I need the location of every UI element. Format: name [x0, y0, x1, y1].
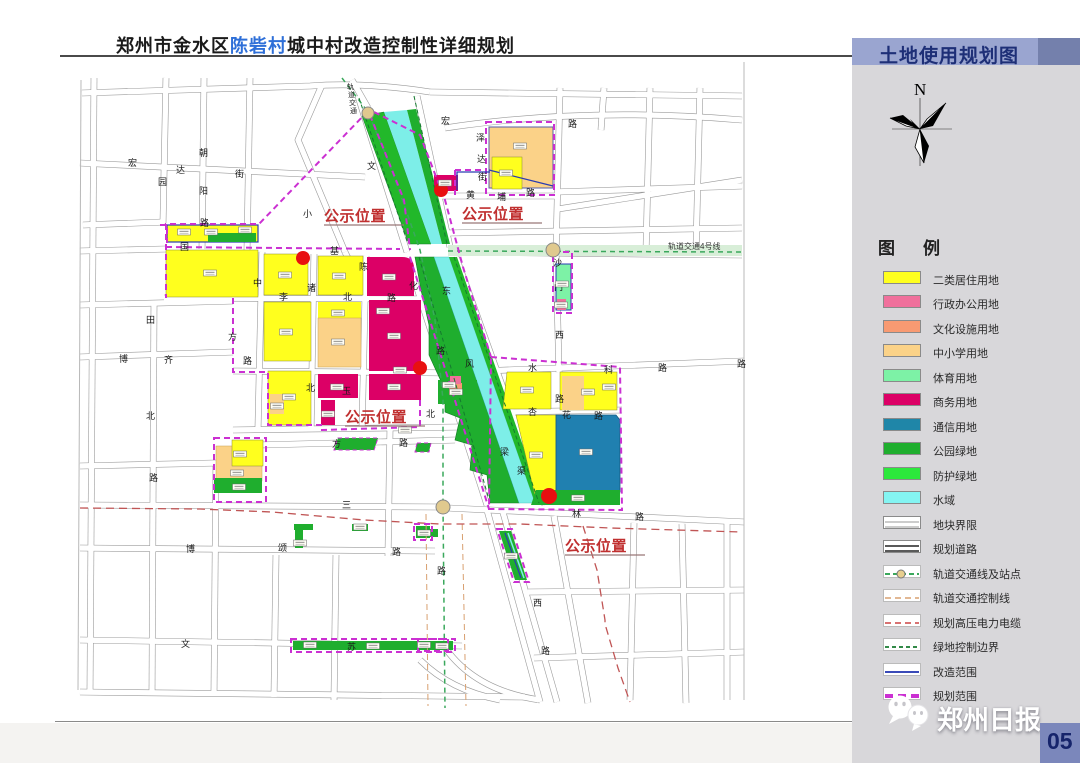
svg-text:路: 路: [526, 187, 535, 198]
svg-text:科: 科: [604, 364, 613, 375]
svg-text:达: 达: [477, 153, 486, 164]
svg-text:苏: 苏: [347, 641, 356, 652]
svg-text:风: 风: [465, 359, 474, 369]
svg-text:路: 路: [436, 345, 445, 356]
svg-text:林: 林: [572, 508, 581, 519]
svg-text:埔: 埔: [497, 191, 506, 202]
svg-text:李: 李: [279, 291, 288, 302]
svg-text:路: 路: [243, 355, 252, 366]
svg-text:街: 街: [478, 171, 487, 182]
svg-text:公示位置: 公示位置: [345, 408, 407, 426]
svg-text:园: 园: [158, 177, 167, 187]
svg-text:路: 路: [568, 118, 577, 129]
svg-text:北: 北: [426, 409, 435, 419]
svg-text:博: 博: [119, 353, 128, 364]
svg-text:中: 中: [253, 277, 262, 288]
svg-text:花: 花: [562, 409, 571, 420]
svg-text:路: 路: [149, 472, 158, 483]
svg-text:诸: 诸: [307, 283, 316, 293]
svg-text:轨: 轨: [347, 82, 354, 91]
svg-text:西: 西: [533, 598, 542, 608]
svg-text:宏: 宏: [441, 115, 450, 126]
svg-text:路: 路: [555, 393, 564, 404]
svg-text:梁: 梁: [500, 446, 509, 457]
svg-text:公示位置: 公示位置: [565, 537, 627, 555]
svg-text:北: 北: [146, 411, 155, 421]
svg-text:交: 交: [349, 98, 356, 107]
svg-text:西: 西: [555, 330, 564, 340]
svg-text:路: 路: [392, 546, 401, 557]
svg-text:颂: 颂: [278, 543, 287, 553]
svg-text:道: 道: [348, 90, 355, 99]
svg-text:公示位置: 公示位置: [324, 207, 386, 225]
svg-text:公示位置: 公示位置: [462, 205, 524, 223]
svg-text:路: 路: [737, 358, 746, 369]
svg-text:路: 路: [635, 511, 644, 522]
svg-text:N: N: [914, 80, 926, 99]
svg-text:路: 路: [594, 410, 603, 421]
svg-text:齐: 齐: [164, 354, 173, 365]
svg-text:路: 路: [541, 645, 550, 656]
svg-text:水: 水: [528, 362, 537, 373]
svg-text:黄: 黄: [466, 189, 475, 200]
svg-text:阳: 阳: [199, 186, 208, 196]
svg-text:基: 基: [330, 245, 339, 256]
svg-text:杏: 杏: [528, 406, 537, 417]
svg-text:宏: 宏: [128, 157, 137, 168]
svg-text:轨道交通4号线: 轨道交通4号线: [668, 241, 720, 251]
svg-text:朝: 朝: [199, 148, 208, 158]
svg-text:博: 博: [186, 543, 195, 554]
svg-text:路: 路: [200, 217, 209, 228]
svg-text:路: 路: [399, 437, 408, 448]
svg-text:小: 小: [303, 209, 312, 219]
svg-text:北: 北: [343, 292, 352, 302]
svg-text:渠: 渠: [517, 465, 526, 476]
svg-text:街: 街: [235, 168, 244, 179]
svg-text:泽: 泽: [476, 133, 485, 143]
svg-text:文: 文: [367, 160, 376, 171]
svg-text:国: 国: [180, 242, 189, 252]
svg-text:通: 通: [350, 106, 357, 115]
svg-text:化: 化: [409, 280, 418, 291]
svg-text:文: 文: [181, 638, 190, 649]
svg-text:陈: 陈: [359, 261, 368, 272]
svg-text:方: 方: [332, 438, 341, 449]
svg-text:达: 达: [176, 164, 185, 175]
svg-text:沙: 沙: [553, 258, 562, 268]
svg-text:方: 方: [228, 331, 237, 342]
svg-text:三: 三: [342, 500, 351, 510]
svg-text:北: 北: [306, 383, 315, 393]
svg-text:路: 路: [658, 362, 667, 373]
svg-text:田: 田: [146, 315, 155, 325]
svg-text:东: 东: [442, 285, 451, 296]
svg-text:路: 路: [387, 292, 396, 303]
svg-text:路: 路: [437, 565, 446, 576]
